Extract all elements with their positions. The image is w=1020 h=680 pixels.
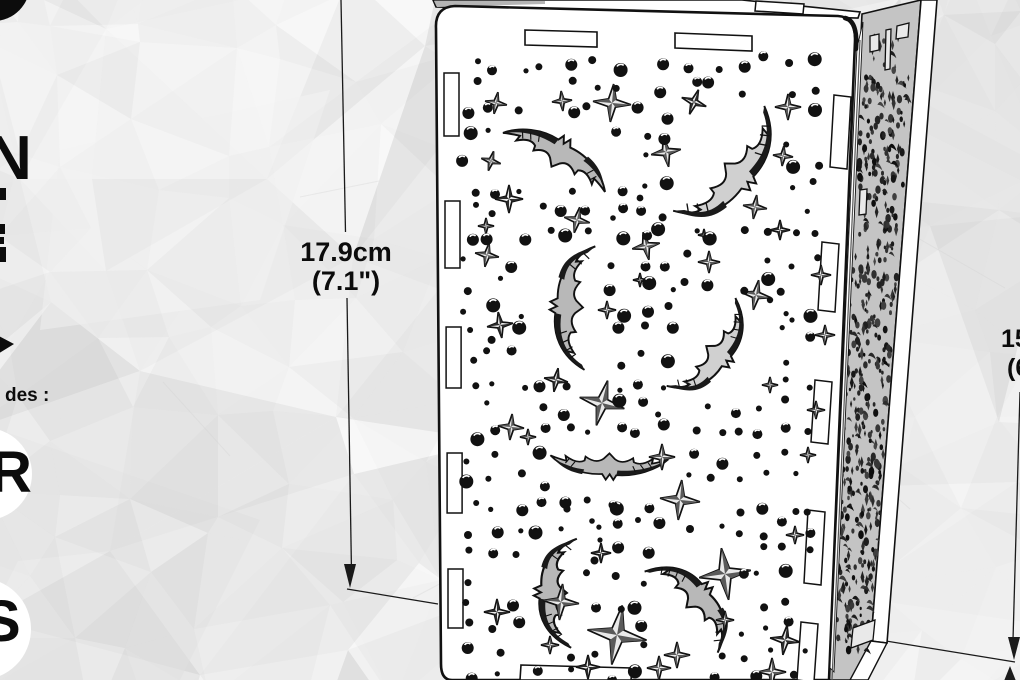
svg-text:(7.1"): (7.1") bbox=[312, 266, 380, 296]
svg-text:17.9cm: 17.9cm bbox=[300, 237, 392, 267]
svg-text:S: S bbox=[0, 589, 21, 654]
svg-text:N: N bbox=[0, 124, 32, 193]
svg-text:des :: des : bbox=[5, 385, 49, 406]
svg-text:R: R bbox=[0, 440, 32, 505]
svg-text:(6: (6 bbox=[1007, 354, 1020, 382]
svg-text:15.2: 15.2 bbox=[1001, 325, 1020, 353]
